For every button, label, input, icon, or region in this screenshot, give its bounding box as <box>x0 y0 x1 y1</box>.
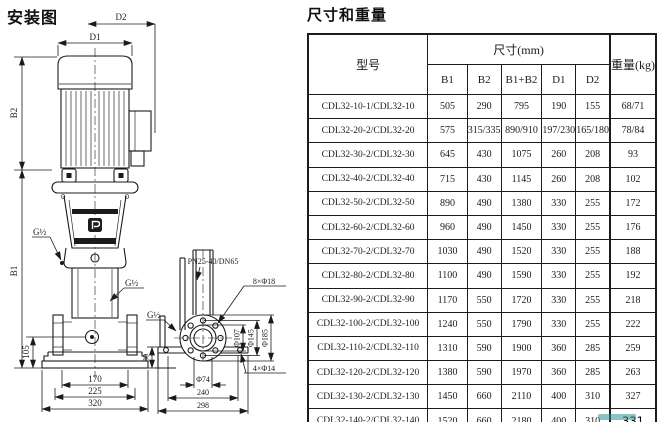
cell-b1: 1030 <box>428 240 468 264</box>
cell-d2: 255 <box>576 215 610 239</box>
table-row: CDL32-90-2/CDL32-9011705501720330255218 <box>308 288 656 312</box>
brand-logo <box>88 218 102 232</box>
flange-spec-label: PN25-40/DN65 <box>188 257 239 266</box>
cell-weight: 222 <box>610 312 656 336</box>
cell-b2: 315/335 <box>467 119 501 143</box>
table-row: CDL32-10-1/CDL32-1050529079519015568/71 <box>308 95 656 119</box>
cell-weight: 259 <box>610 336 656 360</box>
cell-b2: 590 <box>467 336 501 360</box>
cell-d1: 260 <box>542 143 576 167</box>
cell-b1: 1240 <box>428 312 468 336</box>
cell-b1: 890 <box>428 191 468 215</box>
cell-b1: 1520 <box>428 409 468 422</box>
dim-label-dia74: Φ74 <box>196 375 210 384</box>
scan-artifact <box>598 414 636 420</box>
bolt-callout-8x18: 8×Φ18 <box>218 277 286 323</box>
cell-model: CDL32-60-2/CDL32-60 <box>308 215 428 239</box>
cell-d1: 330 <box>542 240 576 264</box>
dim-label-225: 225 <box>88 386 102 396</box>
cell-weight: 172 <box>610 191 656 215</box>
cell-d1: 190 <box>542 95 576 119</box>
port-callout-g-lower: G½ <box>110 278 144 301</box>
cell-model: CDL32-110-2/CDL32-110 <box>308 336 428 360</box>
cell-b1b2: 1380 <box>501 191 542 215</box>
cell-b2: 490 <box>467 264 501 288</box>
cell-weight: 78/84 <box>610 119 656 143</box>
cell-b1b2: 1075 <box>501 143 542 167</box>
cell-b1: 1380 <box>428 361 468 385</box>
dim-label-dia185: Φ185 <box>261 329 270 347</box>
col-header-size-group: 尺寸(mm) <box>428 34 610 65</box>
cell-b1b2: 1590 <box>501 264 542 288</box>
cell-b2: 490 <box>467 240 501 264</box>
cell-weight: 263 <box>610 361 656 385</box>
dimension-30: 30 <box>142 347 159 368</box>
dimension-b2: B2 <box>9 57 57 170</box>
cell-model: CDL32-50-2/CDL32-50 <box>308 191 428 215</box>
table-row: CDL32-80-2/CDL32-8011004901590330255192 <box>308 264 656 288</box>
cell-model: CDL32-20-2/CDL32-20 <box>308 119 428 143</box>
cell-weight: 176 <box>610 215 656 239</box>
cell-d1: 330 <box>542 288 576 312</box>
table-row: CDL32-30-2/CDL32-30645430107526020893 <box>308 143 656 167</box>
port-label-g-upper: G½ <box>33 227 46 237</box>
cell-weight: 327 <box>610 385 656 409</box>
table-row: CDL32-100-2/CDL32-1001240550179033025522… <box>308 312 656 336</box>
table-row: CDL32-70-2/CDL32-7010304901520330255188 <box>308 240 656 264</box>
col-header-b1b2: B1+B2 <box>501 65 542 95</box>
port-callout-g-side: G½ <box>146 310 176 331</box>
cell-d1: 360 <box>542 361 576 385</box>
cell-model: CDL32-10-1/CDL32-10 <box>308 95 428 119</box>
cell-d2: 255 <box>576 264 610 288</box>
dimensions-table-section: 型号 尺寸(mm) 重量(kg) B1 B2 B1+B2 D1 D2 CDL32… <box>307 33 657 422</box>
cell-model: CDL32-40-2/CDL32-40 <box>308 167 428 191</box>
cell-b2: 660 <box>467 385 501 409</box>
cell-d1: 400 <box>542 409 576 422</box>
table-row: CDL32-50-2/CDL32-508904901380330255172 <box>308 191 656 215</box>
cell-b1: 1100 <box>428 264 468 288</box>
cell-b1: 575 <box>428 119 468 143</box>
cell-b1b2: 1900 <box>501 336 542 360</box>
cell-d2: 208 <box>576 143 610 167</box>
col-header-d2: D2 <box>576 65 610 95</box>
cell-b1: 960 <box>428 215 468 239</box>
dim-label-298: 298 <box>197 401 209 410</box>
cell-b2: 490 <box>467 191 501 215</box>
dim-label-b1: B1 <box>9 266 19 277</box>
cell-weight: 93 <box>610 143 656 167</box>
cell-b1b2: 1520 <box>501 240 542 264</box>
cell-b1b2: 795 <box>501 95 542 119</box>
dim-label-d1: D1 <box>90 32 101 42</box>
cell-d1: 330 <box>542 215 576 239</box>
port-callout-g-upper: G½ <box>32 227 61 260</box>
col-header-d1: D1 <box>542 65 576 95</box>
dim-label-dia145: Φ145 <box>247 329 256 347</box>
dimension-b1: B1 <box>9 170 42 368</box>
dimensions-table: 型号 尺寸(mm) 重量(kg) B1 B2 B1+B2 D1 D2 CDL32… <box>307 33 657 422</box>
bolt-label-4x14: 4×Φ14 <box>253 364 275 373</box>
terminal-box <box>129 111 151 166</box>
cell-b1b2: 1970 <box>501 361 542 385</box>
cell-d2: 208 <box>576 167 610 191</box>
installation-drawing: D2 D1 B2 B1 105 170 <box>0 0 305 422</box>
cell-d1: 330 <box>542 191 576 215</box>
table-row: CDL32-20-2/CDL32-20575315/335890/910197/… <box>308 119 656 143</box>
cell-b2: 550 <box>467 288 501 312</box>
cell-d1: 260 <box>542 167 576 191</box>
cell-d2: 255 <box>576 288 610 312</box>
dim-label-b2: B2 <box>9 108 19 119</box>
cell-b1: 1170 <box>428 288 468 312</box>
cell-d2: 255 <box>576 191 610 215</box>
table-row: CDL32-60-2/CDL32-609604901450330255176 <box>308 215 656 239</box>
cell-weight: 192 <box>610 264 656 288</box>
cell-b1: 505 <box>428 95 468 119</box>
cell-b1b2: 1790 <box>501 312 542 336</box>
cell-model: CDL32-140-2/CDL32-140 <box>308 409 428 422</box>
cell-d1: 330 <box>542 312 576 336</box>
col-header-model: 型号 <box>308 34 428 95</box>
table-row: CDL32-120-2/CDL32-1201380590197036028526… <box>308 361 656 385</box>
pump-front-view <box>42 48 151 378</box>
table-row: CDL32-130-2/CDL32-1301450660211040031032… <box>308 385 656 409</box>
cell-model: CDL32-130-2/CDL32-130 <box>308 385 428 409</box>
cell-model: CDL32-100-2/CDL32-100 <box>308 312 428 336</box>
dim-label-105: 105 <box>21 345 31 359</box>
cell-d2: 310 <box>576 385 610 409</box>
dimension-d2: D2 <box>88 12 155 133</box>
dim-label-320: 320 <box>88 398 102 408</box>
cell-b1b2: 2110 <box>501 385 542 409</box>
col-header-weight: 重量(kg) <box>610 34 656 95</box>
cell-d2: 255 <box>576 240 610 264</box>
table-row: CDL32-110-2/CDL32-1101310590190036028525… <box>308 336 656 360</box>
cell-b1b2: 1450 <box>501 215 542 239</box>
cell-b1: 645 <box>428 143 468 167</box>
cell-model: CDL32-70-2/CDL32-70 <box>308 240 428 264</box>
cell-b2: 660 <box>467 409 501 422</box>
cell-b1b2: 1720 <box>501 288 542 312</box>
cell-weight: 218 <box>610 288 656 312</box>
cell-b1: 1310 <box>428 336 468 360</box>
cell-b1: 715 <box>428 167 468 191</box>
cell-b1b2: 2180 <box>501 409 542 422</box>
dim-label-30: 30 <box>142 354 151 362</box>
pump-side-view <box>155 250 248 368</box>
dim-label-d2: D2 <box>116 12 127 22</box>
cell-b2: 430 <box>467 143 501 167</box>
cell-d2: 285 <box>576 361 610 385</box>
cell-d2: 255 <box>576 312 610 336</box>
cell-model: CDL32-90-2/CDL32-90 <box>308 288 428 312</box>
bolt-label-8x18: 8×Φ18 <box>253 277 275 286</box>
cell-d1: 197/230 <box>542 119 576 143</box>
cell-d1: 400 <box>542 385 576 409</box>
dimension-dia74: Φ74 <box>180 357 226 388</box>
cell-d2: 165/180 <box>576 119 610 143</box>
col-header-b2: B2 <box>467 65 501 95</box>
table-row: CDL32-40-2/CDL32-407154301145260208102 <box>308 167 656 191</box>
dim-label-dia107: Φ107 <box>233 329 242 347</box>
cell-weight: 102 <box>610 167 656 191</box>
cell-d1: 360 <box>542 336 576 360</box>
cell-b2: 550 <box>467 312 501 336</box>
cell-b2: 590 <box>467 361 501 385</box>
cell-weight: 188 <box>610 240 656 264</box>
cell-model: CDL32-80-2/CDL32-80 <box>308 264 428 288</box>
cell-d2: 285 <box>576 336 610 360</box>
dim-label-170: 170 <box>88 374 102 384</box>
dimensions-table-body: CDL32-10-1/CDL32-1050529079519015568/71C… <box>308 95 656 422</box>
col-header-b1: B1 <box>428 65 468 95</box>
dim-label-240: 240 <box>197 388 209 397</box>
cell-b2: 490 <box>467 215 501 239</box>
cell-b1: 1450 <box>428 385 468 409</box>
dimension-298: 298 <box>158 355 248 414</box>
port-label-g-side: G½ <box>147 310 160 320</box>
cell-model: CDL32-30-2/CDL32-30 <box>308 143 428 167</box>
dimensions-title: 尺寸和重量 <box>307 4 387 25</box>
cell-b1b2: 890/910 <box>501 119 542 143</box>
cell-model: CDL32-120-2/CDL32-120 <box>308 361 428 385</box>
cell-b2: 430 <box>467 167 501 191</box>
cell-d1: 330 <box>542 264 576 288</box>
datasheet-page: 安装图 尺寸和重量 <box>0 0 657 422</box>
port-label-g-lower: G½ <box>125 278 138 288</box>
cell-d2: 155 <box>576 95 610 119</box>
cell-weight: 68/71 <box>610 95 656 119</box>
cell-b2: 290 <box>467 95 501 119</box>
cell-b1b2: 1145 <box>501 167 542 191</box>
